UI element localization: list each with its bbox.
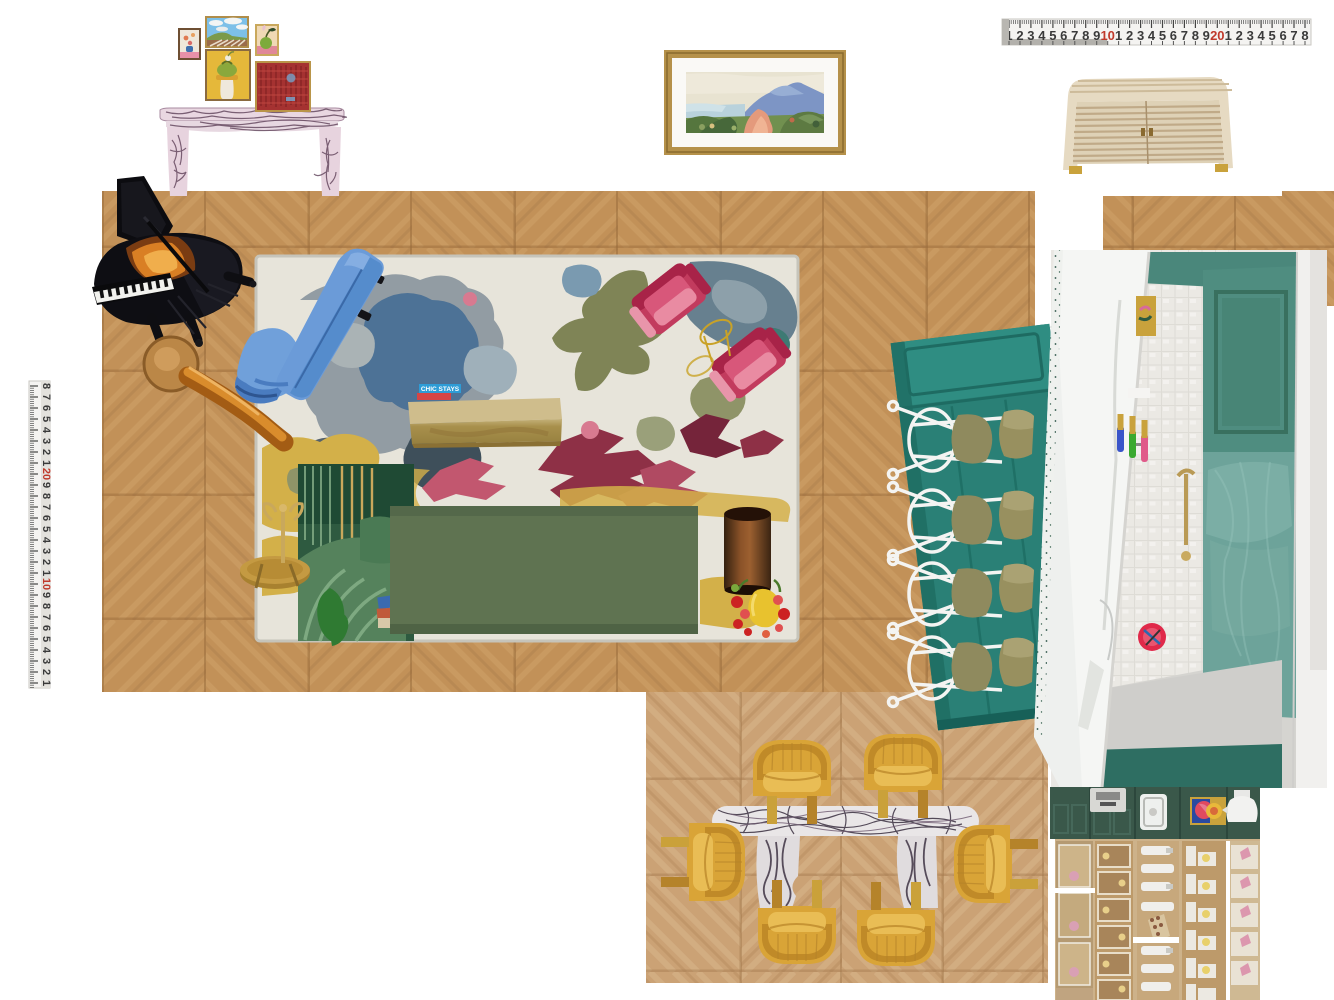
svg-text:20: 20 — [1210, 28, 1224, 43]
svg-text:1: 1 — [1115, 28, 1122, 43]
svg-text:2: 2 — [40, 669, 52, 675]
svg-text:9: 9 — [40, 592, 52, 598]
svg-text:9: 9 — [1093, 28, 1100, 43]
svg-text:3: 3 — [1137, 28, 1144, 43]
svg-text:2: 2 — [1236, 28, 1243, 43]
svg-text:5: 5 — [1159, 28, 1166, 43]
svg-text:6: 6 — [1279, 28, 1286, 43]
svg-text:7: 7 — [40, 394, 52, 400]
svg-text:5: 5 — [40, 526, 52, 532]
svg-text:6: 6 — [40, 405, 52, 411]
svg-text:7: 7 — [1290, 28, 1297, 43]
svg-text:8: 8 — [1301, 28, 1308, 43]
svg-text:1: 1 — [40, 680, 52, 686]
svg-text:6: 6 — [40, 515, 52, 521]
svg-text:6: 6 — [1060, 28, 1067, 43]
svg-text:7: 7 — [40, 614, 52, 620]
svg-text:2: 2 — [40, 449, 52, 455]
svg-text:8: 8 — [1192, 28, 1199, 43]
svg-text:4: 4 — [40, 427, 52, 434]
svg-text:4: 4 — [1148, 28, 1156, 43]
svg-text:9: 9 — [1203, 28, 1210, 43]
svg-text:20: 20 — [40, 468, 52, 480]
svg-text:5: 5 — [1049, 28, 1056, 43]
svg-text:10: 10 — [1100, 28, 1114, 43]
svg-text:1: 1 — [40, 570, 52, 576]
svg-text:1: 1 — [40, 460, 52, 466]
svg-text:8: 8 — [40, 603, 52, 609]
svg-text:2: 2 — [1016, 28, 1023, 43]
svg-text:8: 8 — [1082, 28, 1089, 43]
svg-text:3: 3 — [1027, 28, 1034, 43]
svg-text:5: 5 — [40, 416, 52, 422]
svg-text:7: 7 — [40, 504, 52, 510]
svg-text:5: 5 — [40, 636, 52, 642]
svg-text:2: 2 — [1126, 28, 1133, 43]
svg-text:3: 3 — [40, 438, 52, 444]
svg-text:4: 4 — [1257, 28, 1265, 43]
svg-text:2: 2 — [40, 559, 52, 565]
svg-text:8: 8 — [40, 493, 52, 499]
svg-text:5: 5 — [1268, 28, 1275, 43]
svg-text:1: 1 — [1225, 28, 1232, 43]
svg-text:3: 3 — [1247, 28, 1254, 43]
svg-text:6: 6 — [40, 625, 52, 631]
svg-text:4: 4 — [40, 647, 52, 654]
svg-text:7: 7 — [1181, 28, 1188, 43]
svg-text:9: 9 — [40, 482, 52, 488]
svg-text:8: 8 — [40, 383, 52, 389]
svg-text:4: 4 — [40, 537, 52, 544]
svg-text:7: 7 — [1071, 28, 1078, 43]
svg-text:CHIC STAYS: CHIC STAYS — [421, 386, 460, 393]
svg-text:3: 3 — [40, 658, 52, 664]
svg-text:10: 10 — [40, 578, 52, 590]
svg-text:4: 4 — [1038, 28, 1046, 43]
svg-text:3: 3 — [40, 548, 52, 554]
svg-text:6: 6 — [1170, 28, 1177, 43]
